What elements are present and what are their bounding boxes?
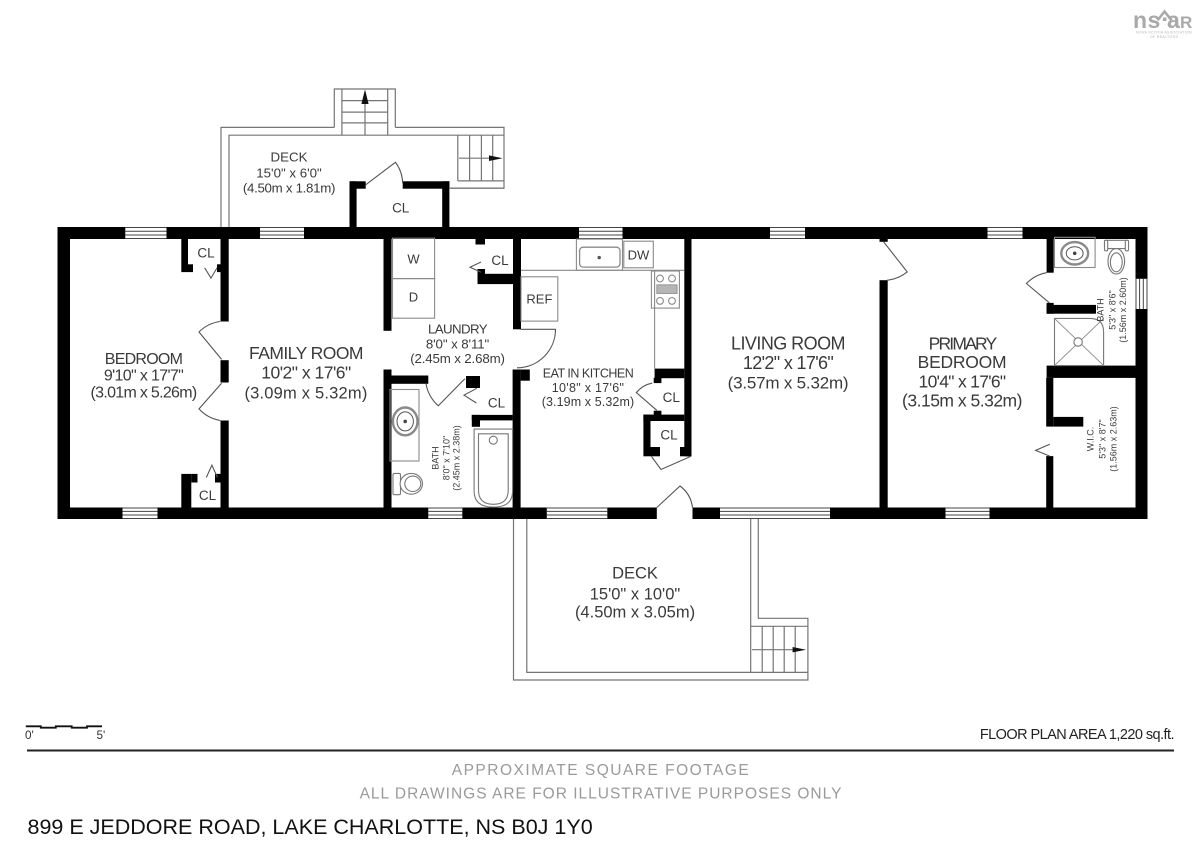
svg-text:10'8" x 17'6": 10'8" x 17'6" [552, 381, 624, 395]
svg-text:10'4" x 17'6": 10'4" x 17'6" [919, 372, 1006, 392]
svg-text:ns: ns [1133, 7, 1161, 33]
svg-text:LAUNDRY: LAUNDRY [428, 322, 488, 337]
svg-text:CL: CL [663, 390, 681, 405]
svg-text:OF REALTORS: OF REALTORS [1150, 35, 1179, 39]
svg-text:(2.45m x 2.38m): (2.45m x 2.38m) [452, 425, 462, 491]
svg-text:5'3" x 8'7": 5'3" x 8'7" [1097, 419, 1107, 458]
svg-text:CL: CL [491, 253, 509, 268]
svg-text:BATH: BATH [431, 446, 441, 469]
svg-text:CL: CL [660, 428, 678, 443]
svg-text:0': 0' [25, 729, 34, 742]
svg-text:DECK: DECK [612, 565, 658, 583]
svg-text:(2.45m x 2.68m): (2.45m x 2.68m) [410, 351, 505, 366]
svg-text:12'2" x 17'6": 12'2" x 17'6" [743, 353, 834, 373]
svg-text:899 E JEDDORE ROAD, LAKE CHARL: 899 E JEDDORE ROAD, LAKE CHARLOTTE, NS B… [28, 815, 593, 839]
svg-text:LIVING ROOM: LIVING ROOM [731, 334, 845, 354]
svg-text:15'0" x 6'0": 15'0" x 6'0" [256, 165, 322, 180]
svg-text:8'0" x 7'10": 8'0" x 7'10" [441, 436, 451, 480]
svg-text:CL: CL [199, 488, 217, 503]
svg-text:FLOOR PLAN AREA 1,220 sq.ft.: FLOOR PLAN AREA 1,220 sq.ft. [980, 727, 1174, 743]
svg-text:(3.09m x 5.32m): (3.09m x 5.32m) [244, 385, 367, 403]
svg-text:APPROXIMATE SQUARE FOOTAGE: APPROXIMATE SQUARE FOOTAGE [452, 762, 751, 779]
svg-text:(4.50m x 3.05m): (4.50m x 3.05m) [575, 604, 695, 622]
svg-text:(1.56m x 2.63m): (1.56m x 2.63m) [1109, 406, 1119, 472]
svg-text:5'3" x 8'6": 5'3" x 8'6" [1107, 290, 1117, 329]
svg-text:CL: CL [488, 396, 506, 411]
svg-text:DECK: DECK [271, 150, 308, 165]
svg-text:W.I.C.: W.I.C. [1086, 427, 1096, 452]
svg-text:5': 5' [97, 729, 106, 742]
svg-text:9'10" x 17'7": 9'10" x 17'7" [104, 368, 183, 385]
svg-text:(3.15m x 5.32m): (3.15m x 5.32m) [902, 390, 1022, 410]
svg-text:BEDROOM: BEDROOM [105, 351, 183, 368]
svg-text:BATH: BATH [1096, 298, 1106, 321]
svg-text:DW: DW [628, 248, 650, 263]
svg-text:(3.01m x 5.26m): (3.01m x 5.26m) [91, 385, 197, 402]
svg-text:PRIMARY: PRIMARY [929, 333, 998, 353]
svg-text:EAT IN KITCHEN: EAT IN KITCHEN [543, 367, 634, 381]
svg-text:(1.56m x 2.60m): (1.56m x 2.60m) [1118, 277, 1128, 343]
svg-text:a: a [1167, 7, 1180, 33]
svg-text:CL: CL [392, 201, 410, 216]
svg-text:REF: REF [526, 292, 552, 307]
svg-text:(3.57m x 5.32m): (3.57m x 5.32m) [728, 374, 849, 393]
svg-text:FAMILY ROOM: FAMILY ROOM [249, 343, 363, 363]
svg-text:R: R [1180, 13, 1192, 32]
svg-text:BEDROOM: BEDROOM [918, 352, 1007, 372]
svg-text:D: D [409, 289, 418, 304]
svg-text:10'2" x 17'6": 10'2" x 17'6" [261, 362, 351, 382]
svg-text:(3.19m x 5.32m): (3.19m x 5.32m) [542, 395, 635, 409]
svg-text:W: W [407, 251, 420, 266]
svg-text:15'0" x 10'0": 15'0" x 10'0" [590, 586, 681, 604]
svg-text:ALL DRAWINGS ARE FOR ILLUSTRAT: ALL DRAWINGS ARE FOR ILLUSTRATIVE PURPOS… [360, 786, 843, 803]
svg-text:CL: CL [197, 246, 215, 261]
svg-text:(4.50m x 1.81m): (4.50m x 1.81m) [243, 180, 335, 195]
svg-text:8'0" x 8'11": 8'0" x 8'11" [426, 336, 490, 351]
